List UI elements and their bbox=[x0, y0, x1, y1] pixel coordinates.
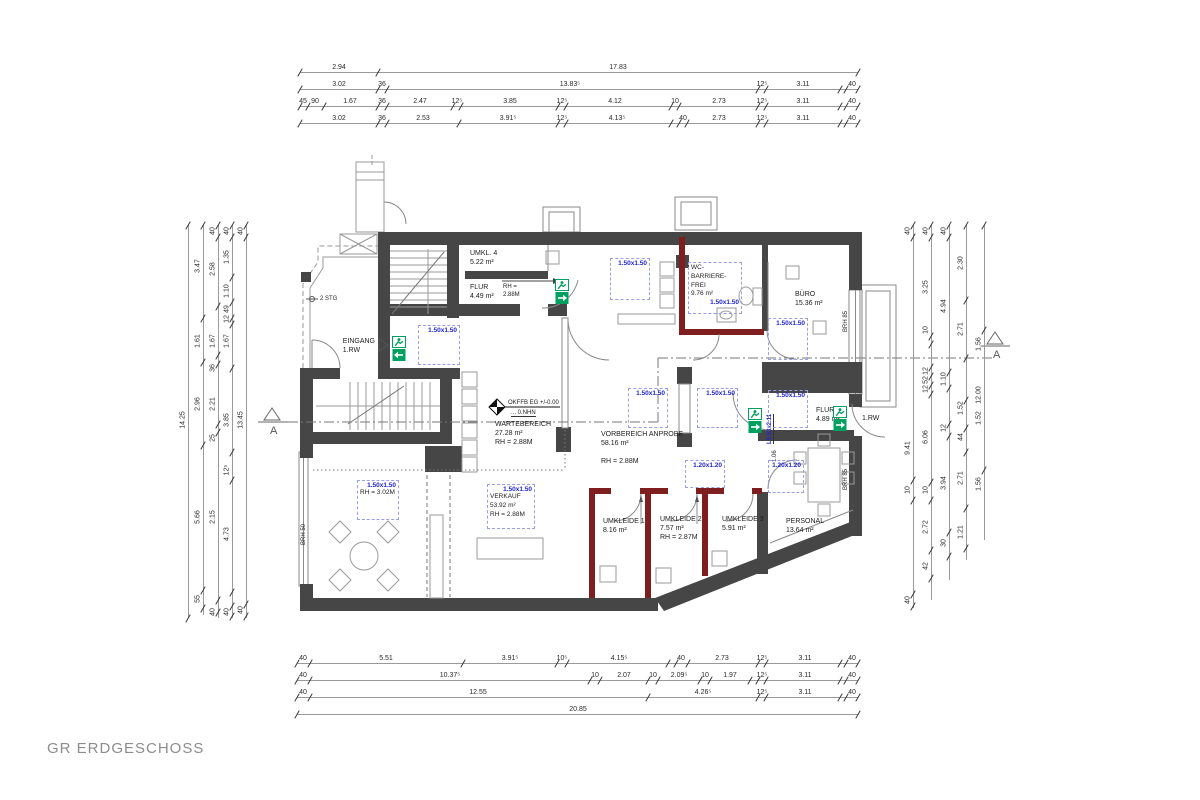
floorplan-sheet: 2.9417.833.023613.83⁵12⁵3.114045901.6736… bbox=[0, 0, 1200, 800]
exit-icons bbox=[0, 0, 1200, 800]
drawing-title: GR ERDGESCHOSS bbox=[47, 740, 204, 757]
